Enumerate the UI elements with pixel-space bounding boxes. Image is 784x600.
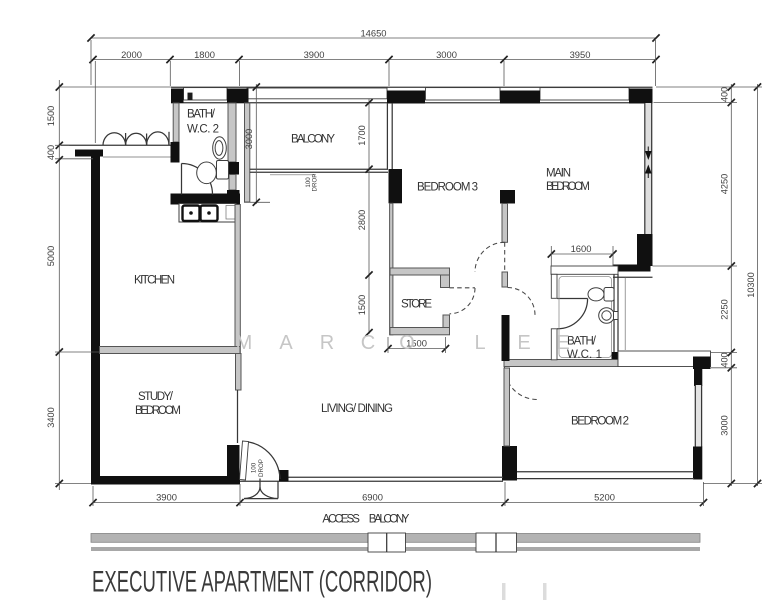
svg-text:1700: 1700 [357, 125, 367, 145]
svg-text:10300: 10300 [746, 272, 756, 298]
svg-text:5200: 5200 [594, 491, 615, 502]
svg-text:E: E [556, 332, 569, 354]
svg-text:BATH/: BATH/ [567, 336, 597, 348]
svg-text:BEDROOM: BEDROOM [546, 181, 590, 193]
svg-text:ACCESS: ACCESS [322, 514, 360, 526]
svg-text:400: 400 [720, 352, 730, 367]
svg-text:M: M [236, 332, 253, 354]
svg-text:2000: 2000 [121, 49, 142, 60]
svg-text:3000: 3000 [244, 129, 254, 149]
svg-text:BEDROOM: BEDROOM [135, 405, 181, 417]
svg-text:3000: 3000 [436, 49, 457, 60]
svg-text:MAIN: MAIN [546, 168, 571, 180]
svg-text:400: 400 [46, 145, 56, 160]
svg-text:BALCONY: BALCONY [291, 134, 335, 146]
svg-text:E: E [517, 332, 530, 354]
svg-text:DROP: DROP [312, 174, 319, 192]
svg-text:3900: 3900 [304, 49, 325, 60]
svg-text:W.C. 1: W.C. 1 [567, 349, 602, 361]
svg-text:1800: 1800 [194, 49, 215, 60]
svg-text:BEDROOM 2: BEDROOM 2 [571, 416, 629, 428]
svg-text:100: 100 [251, 462, 258, 473]
svg-text:W.C. 2: W.C. 2 [187, 124, 219, 136]
svg-text:R: R [320, 332, 334, 354]
svg-text:BATH/: BATH/ [187, 109, 216, 121]
svg-text:6900: 6900 [362, 491, 383, 502]
svg-text:3900: 3900 [156, 491, 177, 502]
svg-text:14650: 14650 [360, 27, 386, 38]
svg-text:BEDROOM 3: BEDROOM 3 [417, 182, 478, 194]
svg-text:STORE: STORE [401, 299, 432, 311]
svg-text:4250: 4250 [720, 174, 730, 194]
svg-text:EXECUTIVE APARTMENT (CORRIDOR): EXECUTIVE APARTMENT (CORRIDOR) [92, 566, 432, 599]
svg-text:3000: 3000 [720, 415, 730, 435]
svg-text:C: C [361, 332, 375, 354]
svg-text:5000: 5000 [46, 246, 56, 266]
svg-text:3400: 3400 [46, 407, 56, 427]
svg-text:STUDY/: STUDY/ [138, 391, 174, 403]
svg-text:L: L [474, 332, 485, 354]
svg-text:1500: 1500 [46, 106, 56, 126]
svg-text:DROP: DROP [258, 459, 265, 477]
svg-text:2800: 2800 [357, 210, 367, 230]
svg-text:2250: 2250 [720, 299, 730, 319]
svg-text:400: 400 [720, 87, 730, 102]
svg-text:1500: 1500 [357, 295, 367, 315]
svg-text:3950: 3950 [570, 49, 591, 60]
svg-text:BALCONY: BALCONY [369, 514, 410, 526]
svg-text:LIVING/ DINING: LIVING/ DINING [321, 403, 393, 415]
svg-text:KITCHEN: KITCHEN [134, 275, 175, 287]
svg-text:O: O [399, 332, 415, 354]
svg-text:1600: 1600 [571, 243, 592, 254]
svg-text:A: A [279, 332, 293, 354]
